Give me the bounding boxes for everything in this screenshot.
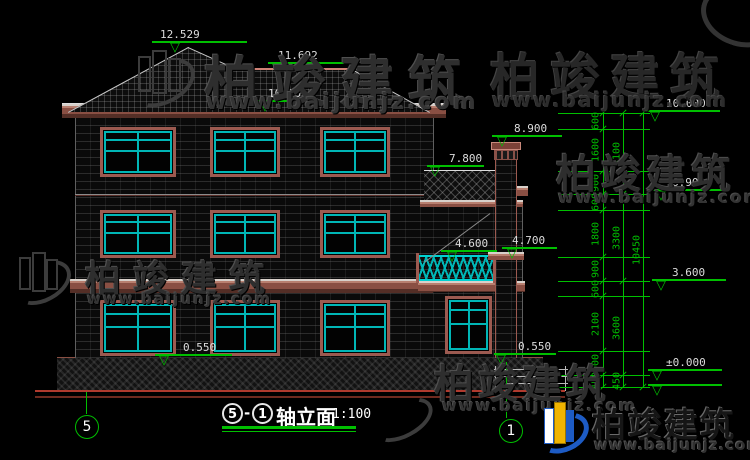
brand-url: www.baijunjz.com: [594, 436, 750, 454]
title-axis-start-bubble: 5: [222, 403, 243, 424]
elevation-marker-chimney: 8.900 ▽: [492, 122, 562, 152]
title-underline-2: [222, 431, 356, 432]
elevation-marker-sill-left: 0.550 ▽: [155, 341, 232, 371]
elevation-marker-balcony: 4.600 ▽: [441, 237, 497, 267]
title-underline-1: [222, 426, 356, 429]
elevation-triangle-icon: ▽: [447, 251, 457, 263]
axis-bubble-1: 1: [499, 419, 523, 443]
dimension-label: 900: [591, 260, 602, 278]
dimension-label: 600: [591, 279, 602, 297]
elevation-triangle-icon: ▽: [159, 355, 169, 367]
elevation-marker-floor2: 3.600 ▽: [652, 266, 726, 296]
elevation-triangle-icon: ▽: [652, 385, 662, 397]
title-axis-end-bubble: 1: [252, 403, 273, 424]
window: [445, 296, 492, 354]
elevation-triangle-icon: ▽: [497, 136, 507, 148]
elevation-triangle-icon: ▽: [656, 280, 666, 292]
dimension-label: 1800: [591, 221, 602, 245]
extension-line: [558, 296, 650, 297]
elevation-triangle-icon: ▽: [507, 248, 517, 260]
axis-line-5: [86, 392, 87, 414]
dimension-label: 3600: [612, 316, 623, 340]
elevation-marker-ground-low: ▽: [648, 371, 722, 401]
elevation-triangle-icon: ▽: [650, 111, 660, 123]
title-dash: -: [244, 404, 250, 422]
watermark-logo-icon: [12, 250, 70, 302]
elevation-triangle-icon: ▽: [430, 166, 440, 178]
window: [320, 127, 390, 177]
axis-bubble-5: 5: [75, 415, 99, 439]
dimension-label: 450: [612, 372, 623, 390]
elevation-marker-wing-roof: 7.800 ▽: [427, 152, 484, 182]
dimension-label: 3300: [612, 225, 623, 249]
drawing-scale: 1:100: [332, 407, 371, 422]
window: [100, 127, 176, 177]
window: [320, 300, 390, 356]
brand-logo-icon: [536, 398, 586, 454]
dimension-label: 10450: [632, 235, 643, 265]
extension-line: [558, 210, 650, 211]
window: [320, 210, 390, 258]
watermark-logo-icon: [370, 392, 432, 438]
watermark-url: www.baijunjz.com: [206, 90, 479, 115]
extension-line: [558, 129, 650, 130]
window: [210, 127, 280, 177]
watermark-logo-icon: [130, 48, 194, 104]
dimension-label: 600: [591, 112, 602, 130]
extension-line: [558, 281, 650, 282]
extension-line: [558, 113, 650, 114]
dimension-label: 2100: [591, 311, 602, 335]
elevation-marker-balcony-ledge: 4.700 ▽: [502, 234, 557, 264]
elevation-drawing-canvas: 6001600900600180090060021009004503100330…: [0, 0, 750, 460]
